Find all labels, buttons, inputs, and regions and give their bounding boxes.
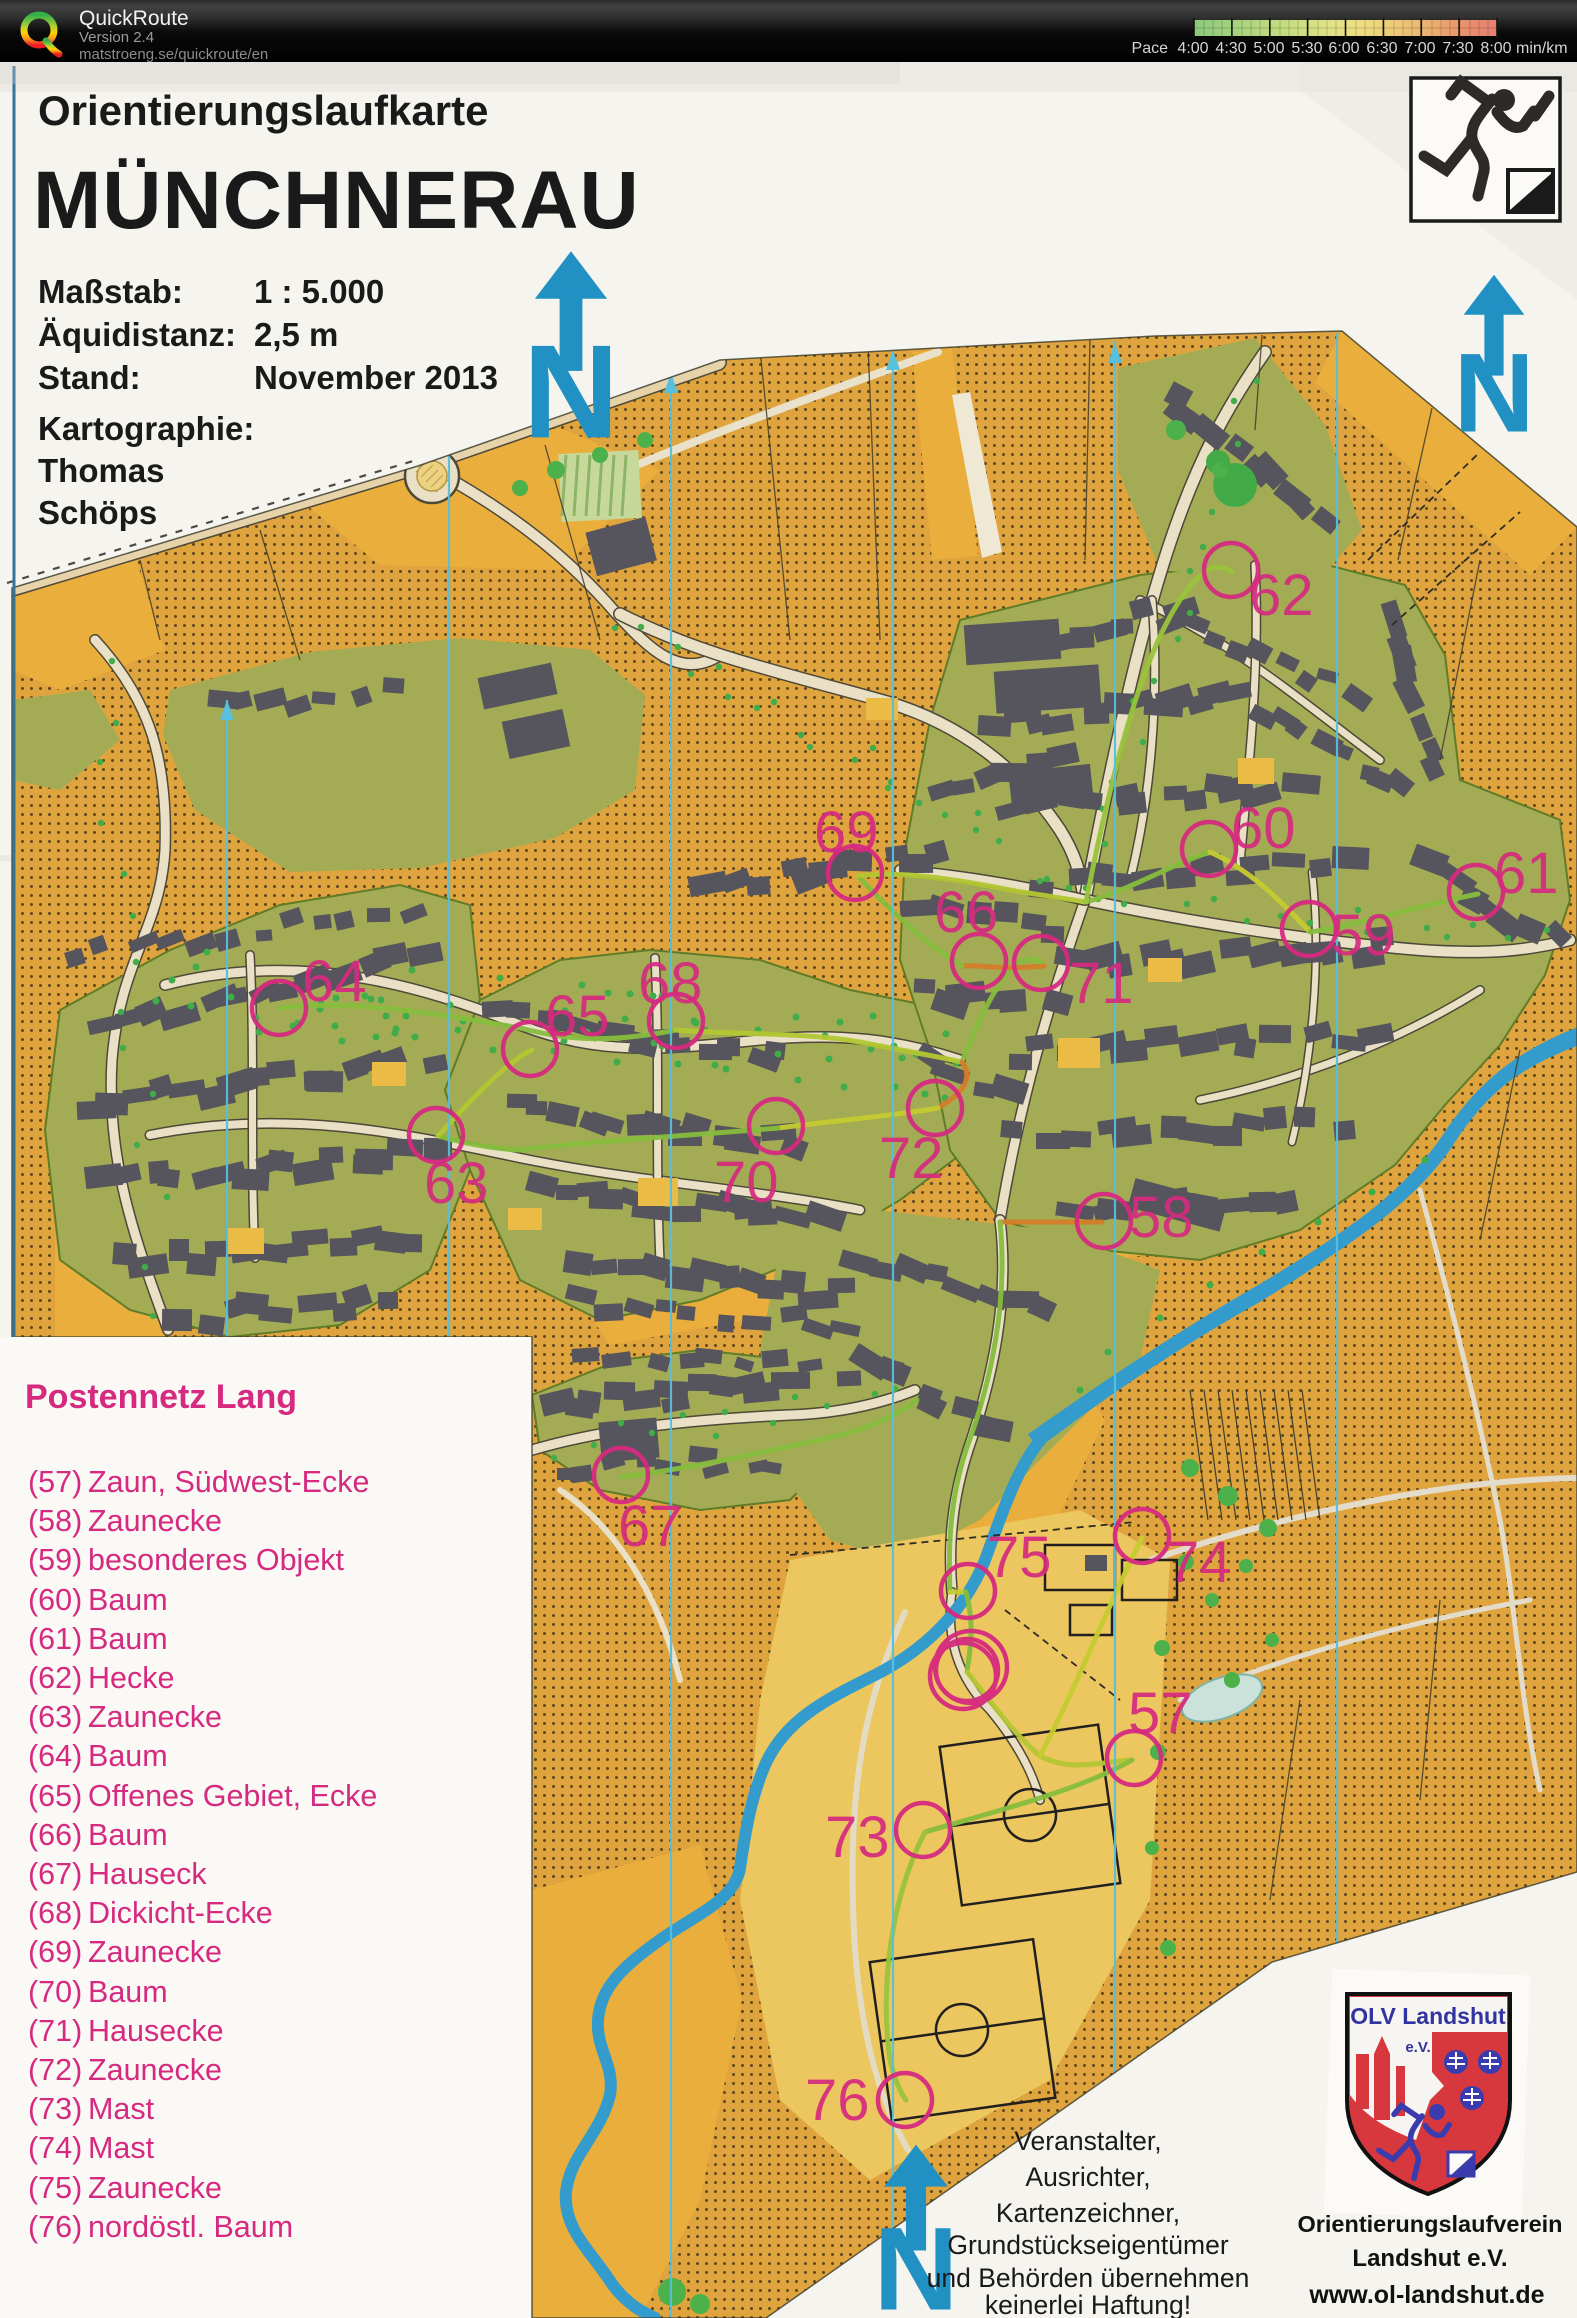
svg-text:Dickicht-Ecke: Dickicht-Ecke <box>88 1896 273 1930</box>
svg-text:67: 67 <box>618 1494 683 1559</box>
svg-text:min/km: min/km <box>1516 40 1568 57</box>
svg-text:matstroeng.se/quickroute/en: matstroeng.se/quickroute/en <box>79 46 268 63</box>
svg-text:Landshut e.V.: Landshut e.V. <box>1352 2245 1507 2272</box>
svg-text:Baum: Baum <box>88 1622 168 1656</box>
svg-text:Mast: Mast <box>88 2131 155 2165</box>
svg-text:(75): (75) <box>28 2171 82 2205</box>
svg-text:63: 63 <box>424 1151 489 1216</box>
svg-text:(63): (63) <box>28 1700 82 1734</box>
svg-text:Zaunecke: Zaunecke <box>88 2053 222 2087</box>
svg-text:Äquidistanz:: Äquidistanz: <box>38 316 236 353</box>
svg-text:Pace: Pace <box>1132 40 1169 57</box>
svg-text:Ausrichter,: Ausrichter, <box>1025 2162 1150 2192</box>
svg-text:(72): (72) <box>28 2053 82 2087</box>
svg-text:(73): (73) <box>28 2092 82 2126</box>
svg-text:(68): (68) <box>28 1896 82 1930</box>
svg-text:www.ol-landshut.de: www.ol-landshut.de <box>1308 2281 1544 2309</box>
svg-text:(64): (64) <box>28 1739 82 1773</box>
svg-text:65: 65 <box>545 984 610 1049</box>
svg-text:und Behörden übernehmen: und Behörden übernehmen <box>927 2263 1250 2293</box>
svg-text:Offenes Gebiet, Ecke: Offenes Gebiet, Ecke <box>88 1779 377 1813</box>
svg-text:4:00: 4:00 <box>1177 40 1208 57</box>
svg-text:Baum: Baum <box>88 1739 168 1773</box>
svg-text:Baum: Baum <box>88 1818 168 1852</box>
svg-text:(71): (71) <box>28 2014 82 2048</box>
svg-text:57: 57 <box>1128 1681 1193 1746</box>
svg-text:Orientierungslaufkarte: Orientierungslaufkarte <box>38 87 488 134</box>
svg-text:5:30: 5:30 <box>1291 40 1322 57</box>
svg-text:71: 71 <box>1069 951 1134 1016</box>
svg-text:69: 69 <box>814 800 879 865</box>
svg-text:5:00: 5:00 <box>1253 40 1284 57</box>
svg-text:Kartographie:: Kartographie: <box>38 410 254 447</box>
svg-text:OLV Landshut: OLV Landshut <box>1350 2003 1506 2029</box>
svg-text:November 2013: November 2013 <box>254 359 498 396</box>
svg-text:Schöps: Schöps <box>38 494 157 531</box>
svg-text:Mast: Mast <box>88 2092 155 2126</box>
svg-text:QuickRoute: QuickRoute <box>79 7 189 30</box>
svg-text:keinerlei Haftung!: keinerlei Haftung! <box>985 2290 1191 2318</box>
svg-text:7:30: 7:30 <box>1442 40 1473 57</box>
svg-text:(57): (57) <box>28 1465 82 1499</box>
svg-text:72: 72 <box>879 1126 944 1191</box>
svg-text:74: 74 <box>1167 1530 1232 1595</box>
svg-text:73: 73 <box>825 1805 890 1870</box>
svg-text:60: 60 <box>1231 796 1296 861</box>
svg-text:nordöstl. Baum: nordöstl. Baum <box>88 2210 293 2244</box>
svg-text:Hecke: Hecke <box>88 1661 174 1695</box>
svg-text:(60): (60) <box>28 1583 82 1617</box>
svg-text:(67): (67) <box>28 1857 82 1891</box>
svg-text:Grundstückseigentümer: Grundstückseigentümer <box>947 2230 1229 2260</box>
svg-text:8:00: 8:00 <box>1480 40 1511 57</box>
svg-text:(62): (62) <box>28 1661 82 1695</box>
svg-text:Thomas: Thomas <box>38 452 165 489</box>
svg-text:Postennetz Lang: Postennetz Lang <box>25 1378 297 1416</box>
svg-text:(58): (58) <box>28 1504 82 1538</box>
svg-text:N: N <box>523 318 619 466</box>
svg-text:7:00: 7:00 <box>1404 40 1435 57</box>
svg-text:6:30: 6:30 <box>1366 40 1397 57</box>
svg-text:(61): (61) <box>28 1622 82 1656</box>
svg-text:(59): (59) <box>28 1543 82 1577</box>
svg-text:Kartenzeichner,: Kartenzeichner, <box>996 2198 1180 2228</box>
svg-text:N: N <box>874 2203 959 2318</box>
svg-text:2,5 m: 2,5 m <box>254 316 338 353</box>
svg-text:70: 70 <box>714 1150 779 1215</box>
svg-text:75: 75 <box>987 1525 1052 1590</box>
svg-text:(65): (65) <box>28 1779 82 1813</box>
svg-text:(70): (70) <box>28 1975 82 2009</box>
svg-text:62: 62 <box>1249 563 1314 628</box>
svg-text:61: 61 <box>1494 841 1559 906</box>
svg-text:64: 64 <box>302 949 367 1014</box>
svg-text:besonderes Objekt: besonderes Objekt <box>88 1543 345 1577</box>
svg-text:(76): (76) <box>28 2210 82 2244</box>
svg-text:76: 76 <box>805 2068 870 2133</box>
svg-text:e.V.: e.V. <box>1405 2039 1430 2056</box>
svg-text:1 : 5.000: 1 : 5.000 <box>254 273 384 310</box>
svg-text:Baum: Baum <box>88 1583 168 1617</box>
svg-text:Baum: Baum <box>88 1975 168 2009</box>
svg-text:6:00: 6:00 <box>1328 40 1359 57</box>
svg-text:N: N <box>1454 331 1535 456</box>
svg-text:(69): (69) <box>28 1935 82 1969</box>
svg-text:(66): (66) <box>28 1818 82 1852</box>
svg-text:Zaunecke: Zaunecke <box>88 1504 222 1538</box>
svg-text:Zaunecke: Zaunecke <box>88 2171 222 2205</box>
svg-text:Stand:: Stand: <box>38 359 141 396</box>
svg-text:Hausecke: Hausecke <box>88 2014 224 2048</box>
svg-text:59: 59 <box>1331 903 1396 968</box>
svg-text:Version 2.4: Version 2.4 <box>79 29 154 46</box>
svg-text:Veranstalter,: Veranstalter, <box>1014 2126 1161 2156</box>
svg-text:Orientierungslaufverein: Orientierungslaufverein <box>1297 2211 1562 2237</box>
svg-text:4:30: 4:30 <box>1215 40 1246 57</box>
svg-text:Maßstab:: Maßstab: <box>38 273 183 310</box>
svg-text:58: 58 <box>1129 1185 1194 1250</box>
svg-text:(74): (74) <box>28 2131 82 2165</box>
svg-text:66: 66 <box>934 880 999 945</box>
svg-text:Zaunecke: Zaunecke <box>88 1700 222 1734</box>
svg-text:Zaun, Südwest-Ecke: Zaun, Südwest-Ecke <box>88 1465 369 1499</box>
svg-text:Zaunecke: Zaunecke <box>88 1935 222 1969</box>
svg-text:MÜNCHNERAU: MÜNCHNERAU <box>33 155 640 246</box>
svg-text:Hauseck: Hauseck <box>88 1857 207 1891</box>
svg-text:68: 68 <box>638 951 703 1016</box>
